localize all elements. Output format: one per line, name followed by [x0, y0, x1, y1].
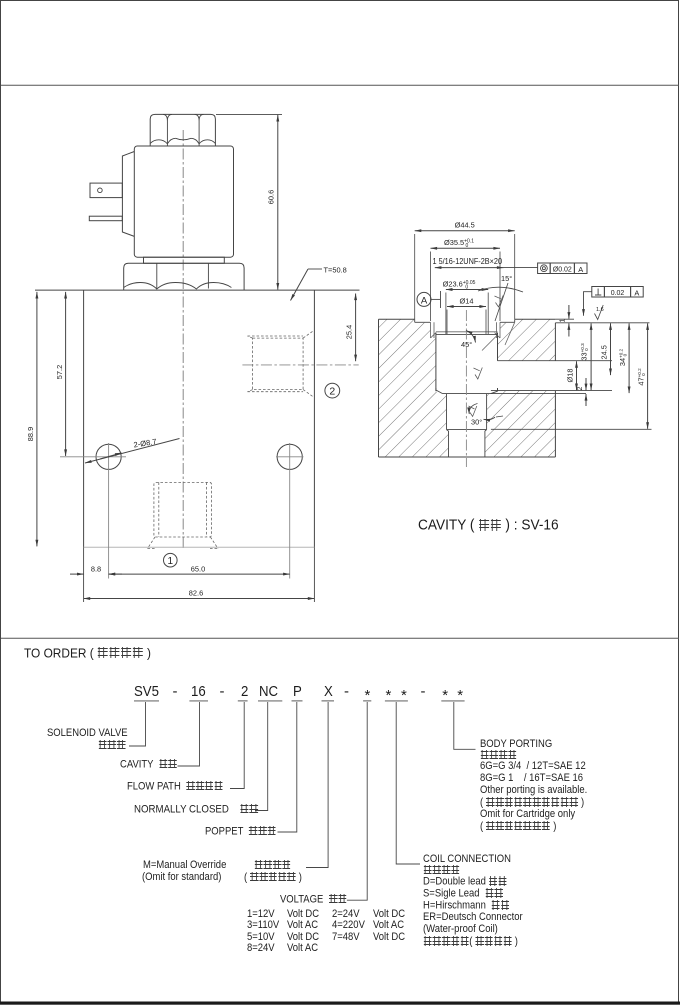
svg-text:T=50.8: T=50.8 [324, 266, 347, 275]
svg-text:A: A [421, 295, 428, 306]
svg-text:2: 2 [329, 386, 335, 398]
svg-text:Ø23.6+0.050: Ø23.6+0.050 [443, 280, 476, 291]
svg-text:34+0.20: 34+0.20 [618, 348, 628, 366]
svg-text:1 5/16-12UNF-2B×20: 1 5/16-12UNF-2B×20 [433, 257, 503, 266]
svg-text:Ø44.5: Ø44.5 [455, 221, 475, 230]
svg-text:A: A [578, 265, 583, 274]
svg-text:15°: 15° [501, 274, 512, 283]
svg-text:2-Ø8.7: 2-Ø8.7 [133, 437, 157, 450]
svg-text:1: 1 [560, 318, 567, 322]
svg-text:33+0.30: 33+0.30 [580, 343, 590, 361]
svg-text:25.4: 25.4 [345, 325, 354, 339]
svg-text:1: 1 [168, 556, 174, 567]
svg-text:1.6: 1.6 [596, 307, 604, 313]
svg-text:8.8: 8.8 [91, 565, 101, 574]
svg-text:65.0: 65.0 [191, 565, 205, 574]
svg-text:82.6: 82.6 [189, 589, 203, 598]
svg-text:0.02: 0.02 [611, 290, 625, 297]
svg-text:Ø14: Ø14 [460, 297, 474, 306]
svg-text:45°: 45° [461, 340, 472, 349]
svg-text:Ø0.02: Ø0.02 [553, 267, 572, 274]
svg-text:A: A [634, 288, 639, 297]
svg-text:Ø18: Ø18 [566, 369, 575, 383]
svg-text:88.9: 88.9 [26, 427, 35, 441]
svg-text:60.6: 60.6 [267, 190, 276, 204]
svg-text:47+0.20: 47+0.20 [636, 368, 646, 386]
svg-text:57.2: 57.2 [55, 365, 64, 379]
svg-text:30°: 30° [471, 418, 482, 427]
svg-text:24.5: 24.5 [599, 345, 608, 359]
svg-text:Ø35.5+0.10: Ø35.5+0.10 [444, 238, 474, 249]
svg-text:2: 2 [577, 386, 584, 390]
